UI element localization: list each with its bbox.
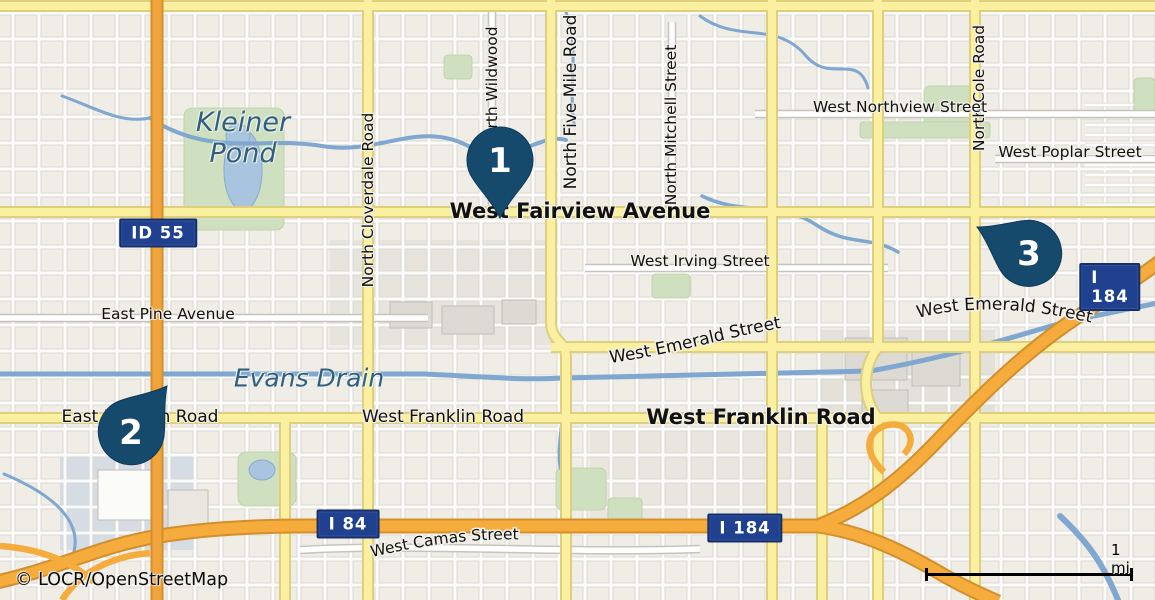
pin-number: 1 [488,141,512,181]
pin-number: 2 [119,413,143,453]
map-marker-1[interactable]: 1 [467,127,533,218]
marker-layer: 1 2 3 [0,0,1155,600]
map-marker-3[interactable]: 3 [962,198,1073,298]
map-attribution: © LOCR/OpenStreetMap [15,570,228,590]
map-marker-2[interactable]: 2 [85,366,193,478]
scale-bar [925,573,1133,576]
scale-label: 1 mi [1111,541,1133,577]
map-viewport[interactable]: West Emerald Street West Emerald Street … [0,0,1155,600]
pin-number: 3 [1017,234,1041,274]
